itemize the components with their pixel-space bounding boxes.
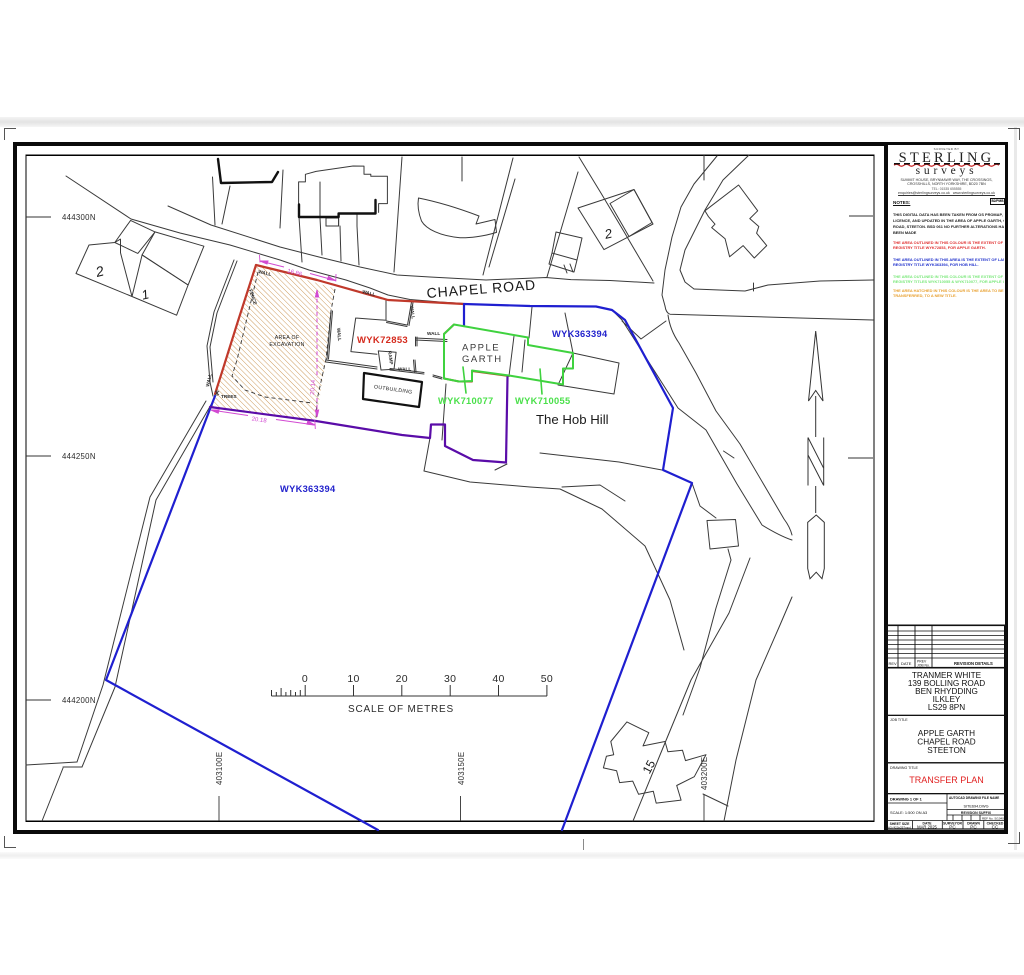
- svg-text:RAMP: RAMP: [387, 350, 394, 364]
- svg-text:EXCAVATION: EXCAVATION: [269, 342, 304, 348]
- svg-text:444250N: 444250N: [62, 452, 96, 461]
- svg-text:REVISION SUFFIX: REVISION SUFFIX: [961, 811, 992, 815]
- svg-text:AREA OF: AREA OF: [275, 335, 300, 341]
- svg-text:WALL: WALL: [336, 328, 342, 342]
- svg-text:CHAPEL ROAD: CHAPEL ROAD: [426, 276, 537, 301]
- svg-text:0: 0: [302, 673, 308, 685]
- svg-text:DRAWING 1 OF 1: DRAWING 1 OF 1: [890, 797, 923, 802]
- svg-text:15: 15: [640, 757, 659, 776]
- svg-text:SCALE: 1:500 ON A3: SCALE: 1:500 ON A3: [890, 810, 927, 815]
- svg-text:TREES: TREES: [221, 394, 237, 399]
- svg-text:AUTOCAD DRAWING FILE NAME: AUTOCAD DRAWING FILE NAME: [949, 796, 999, 800]
- svg-text:20: 20: [396, 673, 408, 685]
- svg-text:The Hob Hill: The Hob Hill: [536, 412, 609, 427]
- svg-text:JOB TITLE: JOB TITLE: [890, 718, 908, 722]
- svg-text:DRAWING TITLE: DRAWING TITLE: [890, 766, 919, 770]
- svg-text:WALL: WALL: [427, 331, 440, 336]
- svg-text:10: 10: [347, 673, 359, 685]
- svg-text:2: 2: [602, 225, 614, 242]
- svg-text:GARTH: GARTH: [462, 354, 503, 365]
- svg-text:2: 2: [93, 262, 106, 280]
- svg-text:SCALE OF METRES: SCALE OF METRES: [348, 704, 454, 715]
- svg-text:20.14: 20.14: [310, 379, 317, 395]
- svg-text:20.18: 20.18: [251, 417, 267, 425]
- svg-text:403200E: 403200E: [700, 757, 709, 790]
- svg-text:MAR 2025: MAR 2025: [917, 825, 937, 830]
- svg-text:WYK710077: WYK710077: [438, 396, 493, 406]
- svg-text:REVISION DETAILS: REVISION DETAILS: [954, 661, 993, 666]
- svg-text:REF No. S/1040: REF No. S/1040: [982, 817, 1004, 821]
- svg-text:A3 (420x297mm): A3 (420x297mm): [888, 826, 911, 830]
- svg-text:TRANSFER PLAN: TRANSFER PLAN: [909, 775, 984, 785]
- svg-text:WYK72853: WYK72853: [357, 335, 408, 346]
- svg-text:WYK363394: WYK363394: [552, 329, 608, 339]
- svg-text:WALL: WALL: [362, 289, 376, 297]
- svg-text:OUTBUILDING: OUTBUILDING: [374, 384, 413, 395]
- svg-text:JOB No.: JOB No.: [917, 664, 930, 668]
- svg-text:SITE694.DWG: SITE694.DWG: [963, 805, 988, 809]
- svg-text:50: 50: [541, 673, 553, 685]
- svg-text:LS29 8PN: LS29 8PN: [928, 703, 965, 712]
- svg-text:444300N: 444300N: [62, 213, 96, 222]
- svg-text:STEETON: STEETON: [927, 746, 966, 755]
- svg-text:40: 40: [492, 673, 504, 685]
- svg-text:444200N: 444200N: [62, 696, 96, 705]
- svg-text:WYK710055: WYK710055: [515, 396, 570, 406]
- svg-text:403150E: 403150E: [457, 752, 466, 785]
- svg-text:WYK363394: WYK363394: [280, 484, 336, 494]
- svg-text:WALL: WALL: [205, 373, 213, 387]
- svg-text:CC: CC: [992, 825, 999, 830]
- svg-text:403100E: 403100E: [215, 752, 224, 785]
- svg-text:PC: PC: [970, 825, 977, 830]
- svg-text:WALL: WALL: [398, 367, 411, 372]
- svg-text:30: 30: [444, 673, 456, 685]
- svg-text:REV: REV: [889, 661, 898, 666]
- svg-text:APPLE: APPLE: [462, 343, 500, 354]
- svg-text:DATE: DATE: [901, 661, 912, 666]
- svg-text:PC: PC: [949, 825, 956, 830]
